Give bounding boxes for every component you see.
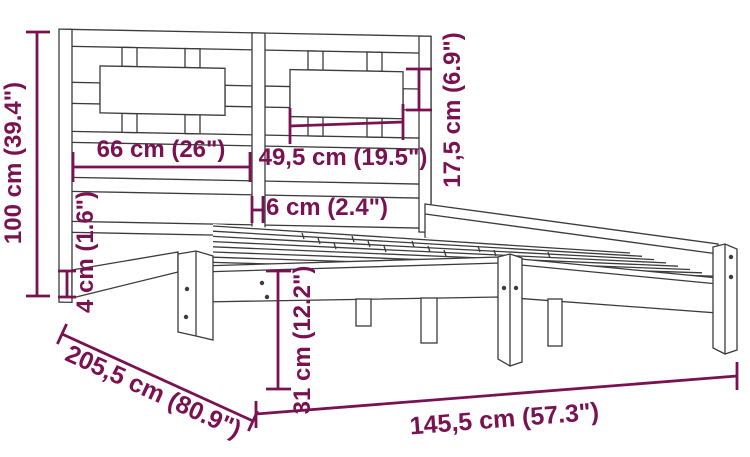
dim-base-height-label: 31 cm (12.2") (289, 266, 316, 415)
headboard-connector (122, 47, 137, 66)
headboard-stub (265, 86, 290, 107)
dim-panel-height-label: 17,5 cm (6.9") (439, 32, 466, 187)
dim-headboard-left-width-label: 66 cm (26") (97, 136, 226, 163)
dim-headboard-panel-width-label: 49,5 cm (19.5") (259, 144, 428, 171)
headboard-connector (367, 52, 382, 71)
bed-frame-diagram: 100 cm (39.4") 66 cm (26") 49,5 cm (19.5… (0, 0, 750, 457)
dim-total-height: 100 cm (39.4") (0, 32, 50, 296)
headboard-stub (225, 85, 252, 107)
headboard-connector (367, 118, 382, 137)
leg-middle (421, 298, 437, 343)
leg-center-right (548, 299, 562, 346)
dim-width-label: 145,5 cm (57.3") (409, 398, 600, 441)
dim-center-post: 6 cm (2.4") (252, 194, 388, 223)
dim-height-label: 100 cm (39.4") (0, 82, 27, 244)
headboard-left-post (59, 29, 72, 302)
headboard-panel-right (290, 70, 403, 119)
headboard-connector (185, 115, 200, 134)
headboard-panel-left (100, 66, 225, 115)
leg-center-front (356, 299, 371, 326)
leg-front-left (178, 251, 213, 340)
headboard-stub (403, 89, 419, 110)
dim-frame-width: 145,5 cm (57.3") (256, 362, 737, 440)
dim-length-label: 205,5 cm (80.9") (61, 340, 245, 444)
headboard-right-post (419, 36, 431, 232)
leg-right-corner (713, 244, 737, 354)
dim-frame-length: 205,5 cm (80.9") (57, 324, 257, 444)
dim-rail-thickness-label: 4 cm (1.6") (72, 191, 99, 313)
dim-post-width-label: 6 cm (2.4") (266, 194, 388, 221)
headboard-connector (122, 113, 137, 132)
headboard-connector (185, 49, 200, 68)
leg-front-corner (498, 254, 522, 366)
headboard-connector (308, 51, 323, 70)
headboard-stub (70, 82, 100, 104)
